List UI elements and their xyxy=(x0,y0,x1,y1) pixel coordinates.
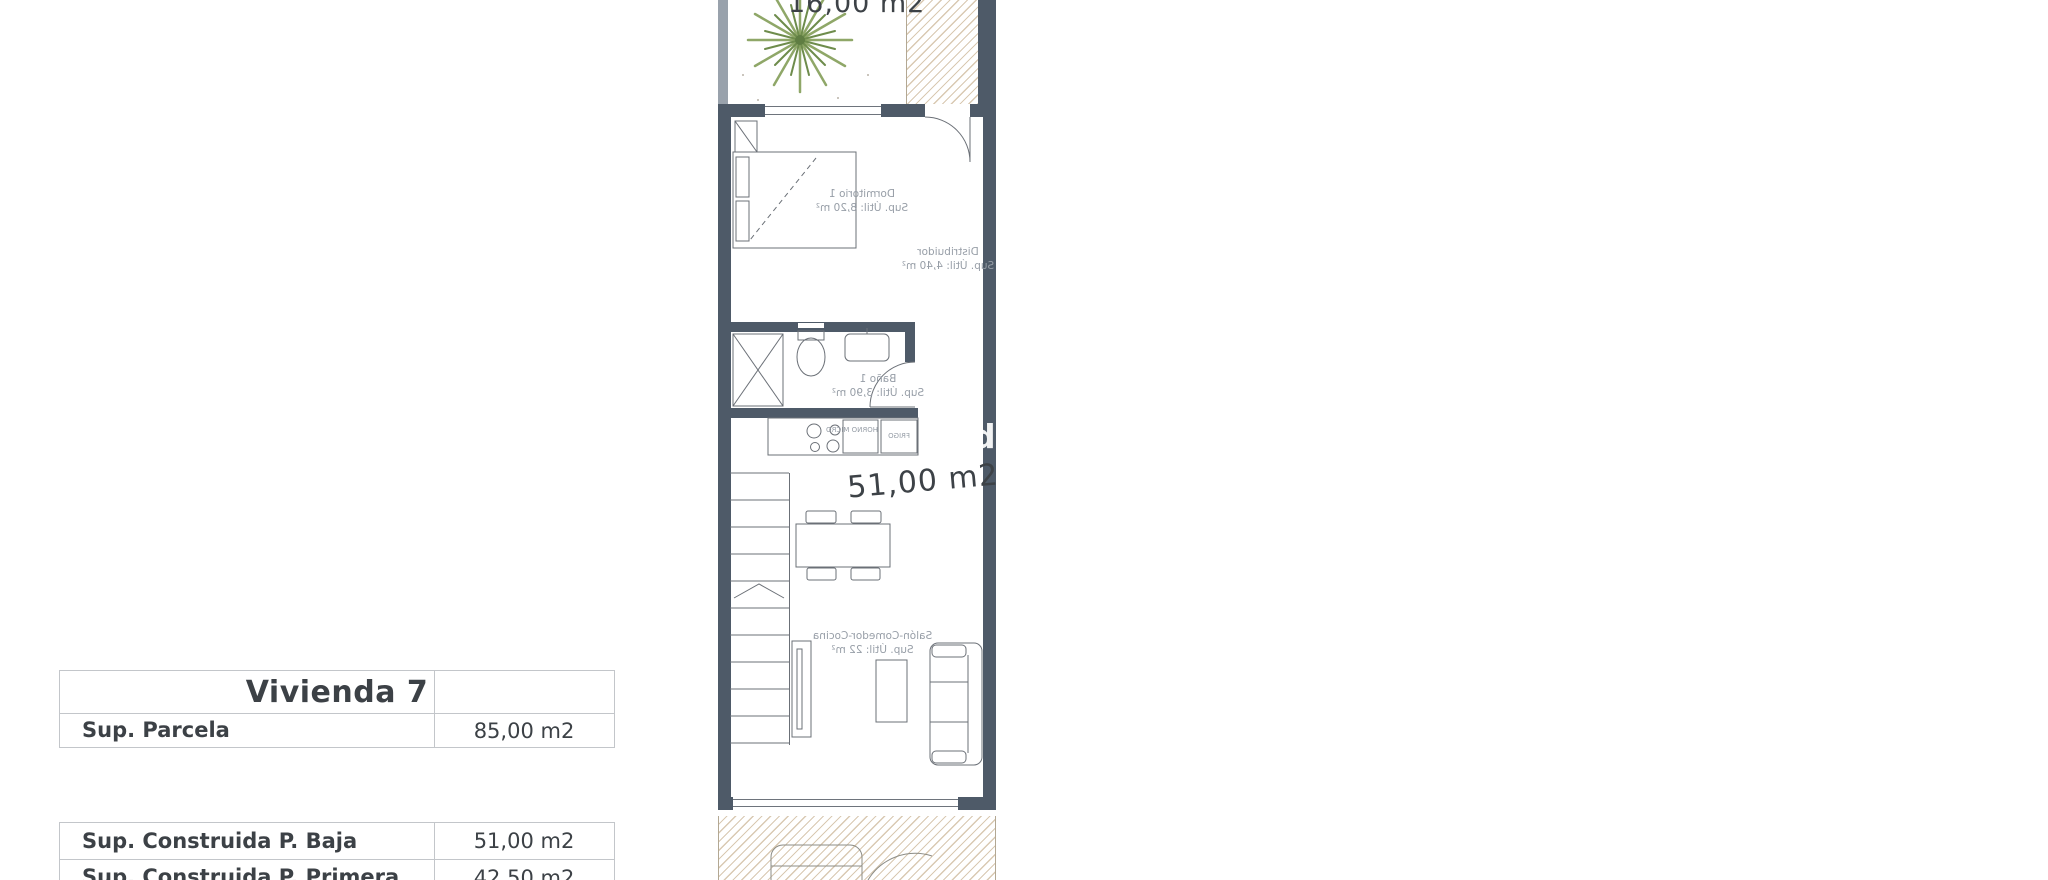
garden-area-label: 16,00 m2 xyxy=(788,0,904,19)
table-row: Sup. Construida P. Baja 51,00 m2 xyxy=(60,823,614,859)
distribuidor-label: Distribuidor Sup. Útil: 4,40 m² xyxy=(896,246,1000,274)
row-label: Sup. Construida P. Baja xyxy=(60,825,434,858)
watermark-text: din xyxy=(972,417,1033,456)
room-area: Sup. Útil: 8,20 m² xyxy=(816,202,908,214)
room-name: Baño 1 xyxy=(860,373,897,385)
dwelling-title: Vivienda 7 xyxy=(60,671,614,713)
row-label: Sup. Construida P. Primera xyxy=(60,861,434,880)
room-area: Sup. Útil: 3,90 m² xyxy=(832,387,924,399)
table-row: Sup. Construida P. Primera 42,50 m2 xyxy=(60,859,614,880)
dining-table-icon xyxy=(796,511,890,580)
ground-floor-plan: 16,00 m2 Dormitorio 1 Sup. Útil: 8,20 m²… xyxy=(0,0,1100,880)
entrance-door-icon xyxy=(925,117,970,162)
toilet-icon xyxy=(797,331,825,376)
room-name: Salón-Comedor-Cocina xyxy=(813,630,932,642)
room-area: Sup. Útil: 22 m² xyxy=(831,644,913,656)
first-floor-plan: 1.03 0.90 0.90 1.70 2.02 1.88 2.21 2.02 … xyxy=(1100,0,1600,880)
table-row: Sup. Parcela 85,00 m2 xyxy=(60,713,614,747)
room-area: Sup. Útil: 4,40 m² xyxy=(902,260,994,272)
coffee-table-icon xyxy=(876,660,907,722)
room-name: Dormitorio 1 xyxy=(829,188,895,200)
title-block-main: Vivienda 7 Sup. Parcela 85,00 m2 xyxy=(59,670,615,748)
bano1-label: Baño 1 Sup. Útil: 3,90 m² xyxy=(826,373,930,401)
car-icon xyxy=(771,845,932,880)
ground-floor-furniture-layer xyxy=(718,0,996,880)
row-value: 51,00 m2 xyxy=(434,829,614,853)
frigo-label: FRIGO xyxy=(881,432,917,441)
stairs-icon xyxy=(730,473,790,745)
row-label: Sup. Parcela xyxy=(60,714,434,747)
solarium-plan: 4.60 5.73 8.57 2.90 Solarium Sup. Útil: … xyxy=(1600,0,2048,880)
closet-icon xyxy=(735,121,757,152)
salon-label: Salón-Comedor-Cocina Sup. Útil: 22 m² xyxy=(800,630,945,658)
room-name: Distribuidor xyxy=(917,246,978,258)
dormitorio1-label: Dormitorio 1 Sup. Útil: 8,20 m² xyxy=(800,188,924,216)
oven-icon xyxy=(843,420,878,453)
shower-icon xyxy=(733,334,783,406)
sink-icon xyxy=(845,328,889,361)
horno-micro-label: HORNO MICRO xyxy=(843,426,878,434)
column-divider xyxy=(434,823,435,880)
title-block-built: Sup. Construida P. Baja 51,00 m2 Sup. Co… xyxy=(59,822,615,880)
floorplan-sheet: 16,00 m2 Dormitorio 1 Sup. Útil: 8,20 m²… xyxy=(0,0,2048,880)
column-divider xyxy=(434,671,435,747)
row-value: 42,50 m2 xyxy=(434,866,614,880)
sofa-icon xyxy=(930,643,982,765)
row-value: 85,00 m2 xyxy=(434,719,614,743)
